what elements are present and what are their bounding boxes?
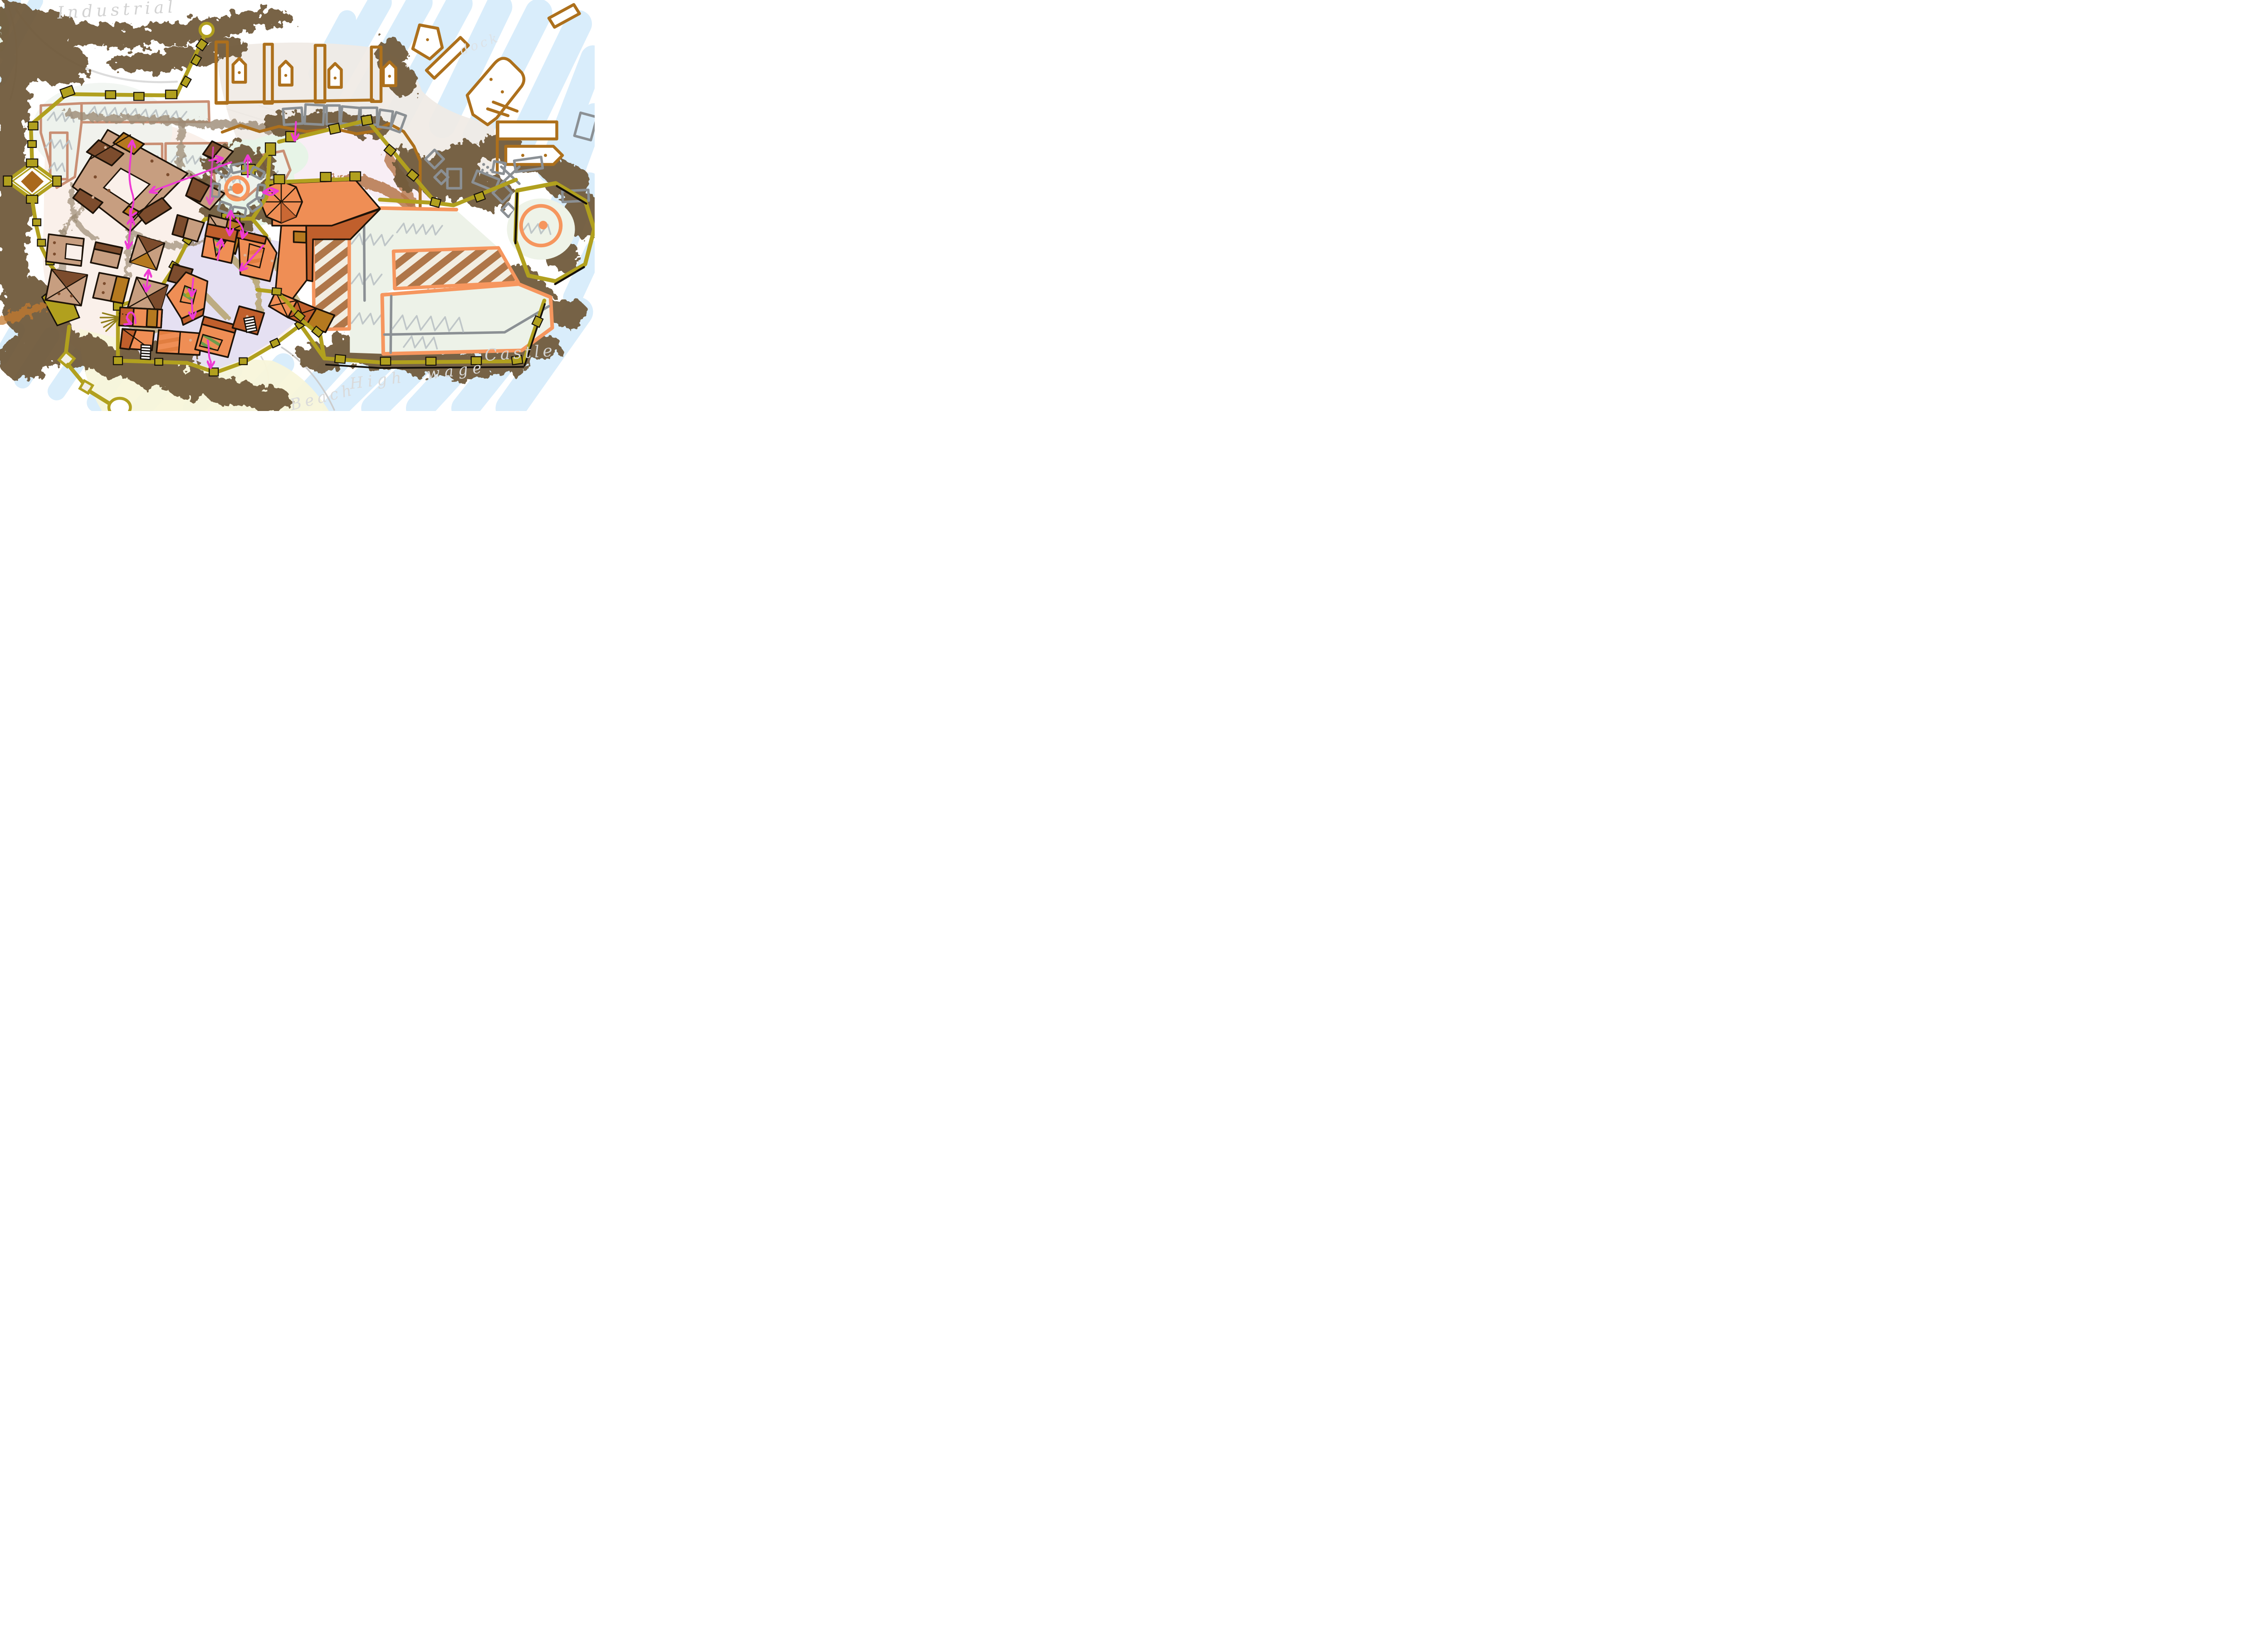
- map-canvas: Industrial dock Castle High wage Beach: [0, 0, 595, 411]
- old-town-block: [93, 273, 129, 303]
- long-hall-building: [382, 284, 552, 354]
- lamp-post-icon: [200, 23, 213, 36]
- lower-town-south-building: [156, 330, 202, 355]
- old-town-pyramid-building: [45, 269, 88, 306]
- city-map-drawing: [0, 0, 595, 411]
- old-town-c-building: [46, 234, 84, 266]
